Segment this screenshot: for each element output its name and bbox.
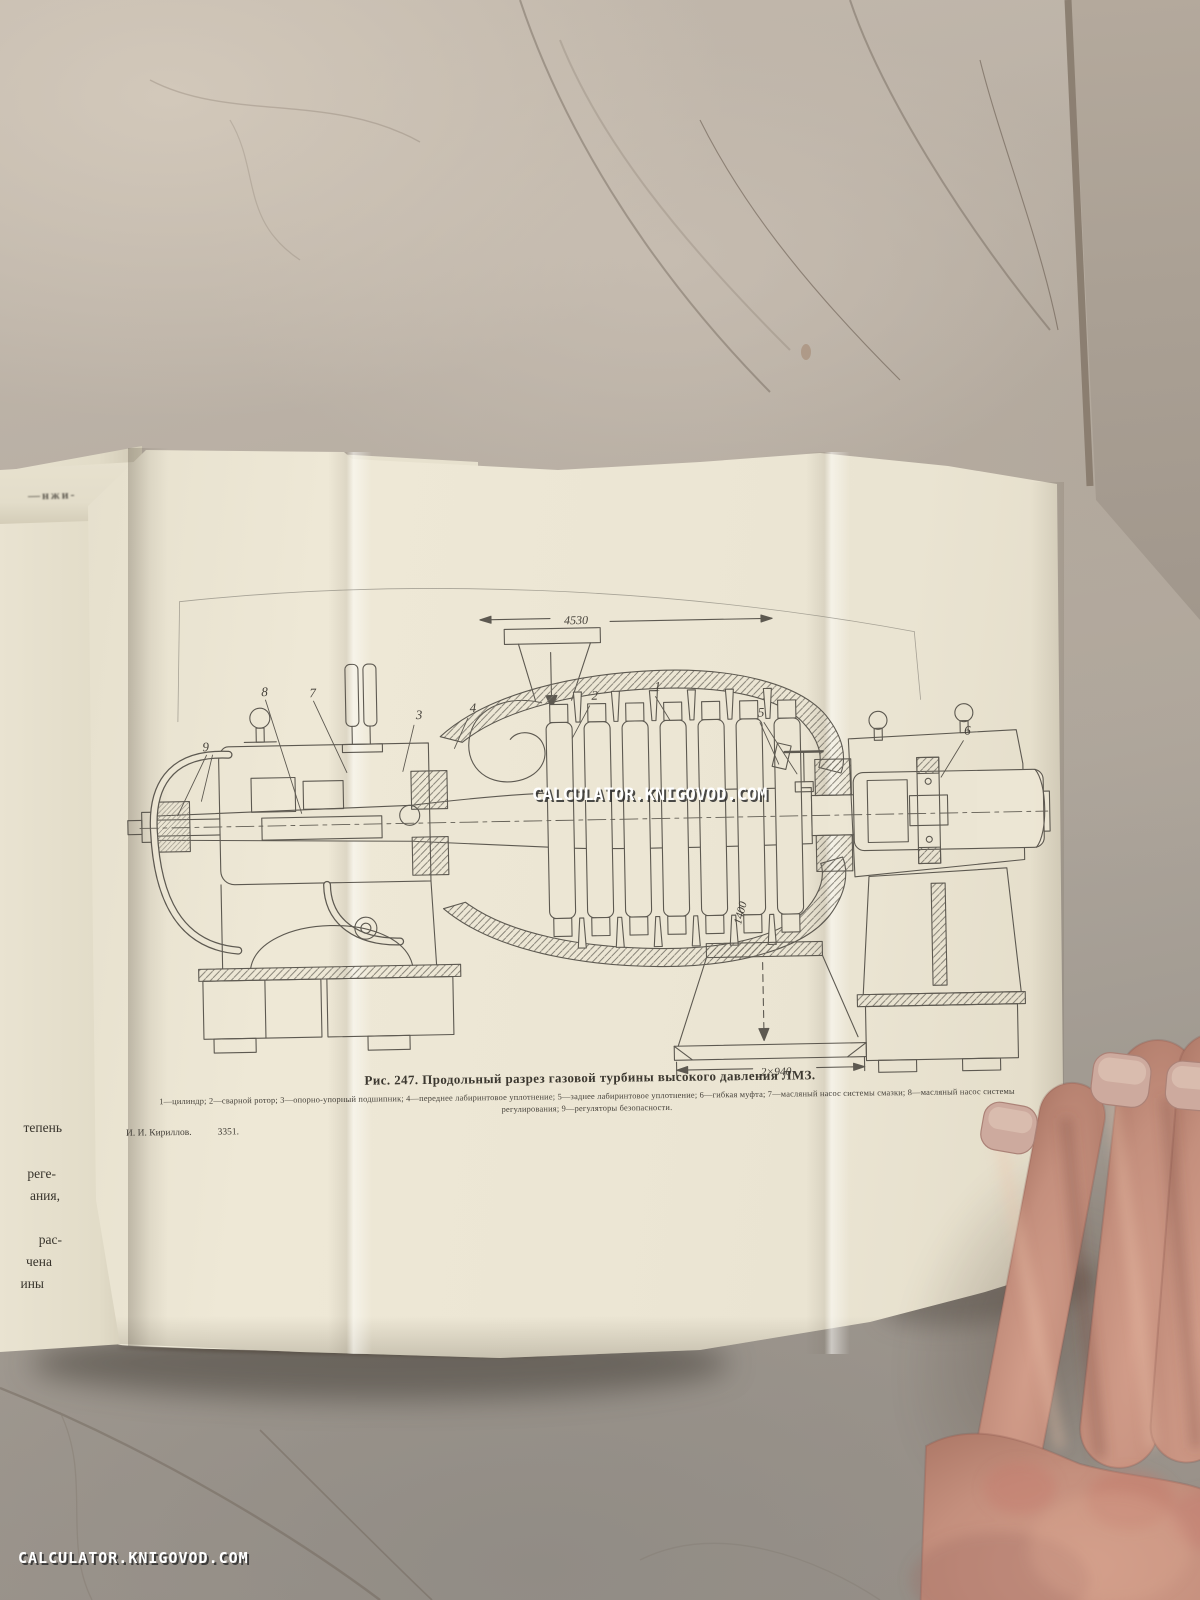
tile-grout-line (1068, 0, 1090, 486)
part-label-1: 1 (654, 678, 661, 693)
photo-scene: тепень реге- ания, рас- чена ины —нжи- (0, 0, 1200, 1600)
watermark-center: CALCULATOR.KNIGOVOD.COM (532, 785, 767, 805)
left-page-text-fragment: ания, (0, 1189, 60, 1203)
print-order-number: 3351. (218, 1127, 239, 1137)
turbine-section-drawing: 4530 1400 2×940 9 8 7 3 4 2 1 5 6 (107, 563, 1057, 1093)
part-label-7: 7 (309, 685, 316, 700)
left-page-text-fragment: рас- (0, 1233, 62, 1247)
part-label-5: 5 (758, 704, 765, 719)
left-page-text-fragment: реге- (0, 1167, 56, 1181)
front-foundation (199, 964, 463, 1053)
left-page-text-fragment: чена (0, 1255, 52, 1269)
author-name: И. И. Кириллов. (126, 1128, 192, 1139)
part-label-3: 3 (415, 707, 423, 722)
dimension-overall-length (480, 611, 772, 628)
part-label-6: 6 (964, 723, 971, 738)
part-label-2: 2 (591, 688, 598, 703)
hand (880, 1018, 1200, 1600)
watermark-footer: CALCULATOR.KNIGOVOD.COM (18, 1549, 249, 1567)
part-label-9: 9 (202, 739, 209, 754)
left-page-text-fragment: тепень (0, 1121, 62, 1135)
part-label-4: 4 (470, 700, 477, 715)
dimension-length-label: 4530 (564, 613, 588, 627)
part-label-8: 8 (261, 684, 268, 699)
left-page-text-fragment: ины (0, 1277, 44, 1291)
flap-smudged-text: —нжи- (28, 487, 77, 503)
printer-imprint: И. И. Кириллов.3351. (126, 1127, 239, 1138)
